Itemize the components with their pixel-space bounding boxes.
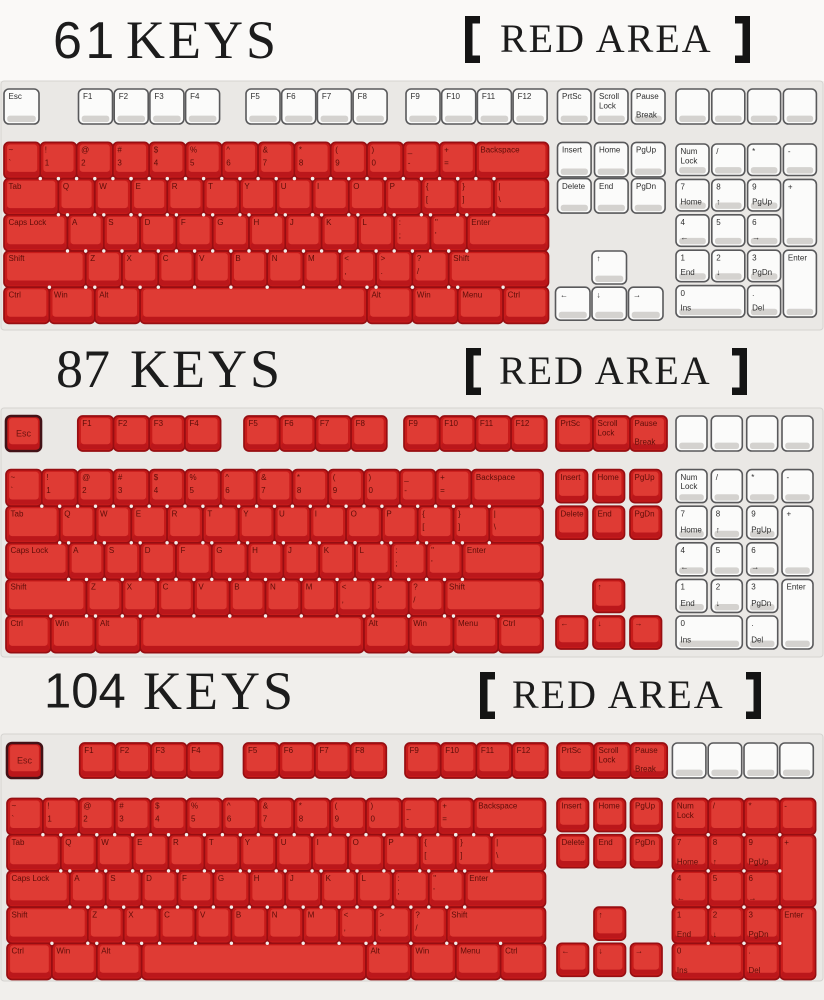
svg-text:*: * (749, 802, 752, 811)
svg-text:): ) (369, 473, 372, 482)
svg-text:=: = (444, 159, 449, 168)
svg-text:": " (435, 218, 438, 227)
svg-text:J: J (290, 874, 294, 883)
svg-text:F2: F2 (118, 419, 128, 428)
svg-text:↓: ↓ (716, 268, 720, 277)
svg-text:6: 6 (749, 874, 754, 883)
svg-text:Delete: Delete (561, 509, 585, 518)
svg-text:|: | (499, 182, 501, 191)
svg-text:Enter: Enter (471, 218, 490, 227)
svg-text:+: + (440, 473, 445, 482)
svg-text:S: S (110, 874, 115, 883)
svg-text:Enter: Enter (467, 546, 486, 555)
svg-text:→: → (633, 290, 641, 299)
svg-text:0: 0 (372, 159, 377, 168)
svg-text:3: 3 (752, 253, 757, 262)
svg-text:O: O (353, 182, 359, 191)
svg-text:F10: F10 (445, 746, 459, 755)
svg-text:+: + (788, 183, 793, 192)
svg-text:F6: F6 (286, 92, 296, 101)
svg-text:4: 4 (681, 218, 686, 227)
svg-text:T: T (207, 509, 212, 518)
svg-text:,: , (344, 923, 346, 932)
svg-text:F4: F4 (191, 746, 201, 755)
svg-text:C: C (163, 583, 169, 592)
svg-text:T: T (209, 838, 214, 847)
svg-text:9: 9 (749, 838, 754, 847)
svg-text:→: → (635, 619, 643, 628)
svg-text:O: O (353, 838, 359, 847)
svg-text:<: < (344, 910, 349, 919)
svg-text:~: ~ (11, 473, 16, 482)
svg-text:Scroll: Scroll (599, 746, 619, 755)
svg-text:T: T (208, 182, 213, 191)
svg-text:Backspace: Backspace (476, 473, 516, 482)
svg-text:←: ← (681, 562, 689, 571)
svg-text:5: 5 (716, 218, 721, 227)
svg-text:KEYS: KEYS (130, 339, 283, 399)
svg-text:Del: Del (751, 636, 763, 645)
svg-text:←: ← (562, 947, 570, 956)
svg-text:4: 4 (154, 159, 159, 168)
svg-text:Pause: Pause (635, 419, 658, 428)
svg-text:↓: ↓ (713, 930, 717, 939)
svg-text:F6: F6 (284, 419, 294, 428)
svg-text:7: 7 (263, 815, 268, 824)
svg-text:&: & (263, 802, 269, 811)
svg-text:9: 9 (752, 183, 757, 192)
svg-text:PgDn: PgDn (635, 838, 655, 847)
svg-text:*: * (297, 473, 300, 482)
svg-text:1: 1 (681, 583, 686, 592)
svg-text:(: ( (333, 473, 336, 482)
svg-text:Shift: Shift (11, 583, 28, 592)
svg-text:PgUp: PgUp (751, 526, 772, 535)
svg-text:%: % (190, 146, 197, 155)
svg-text:F: F (181, 218, 186, 227)
svg-text:F: F (182, 874, 187, 883)
svg-text:Alt: Alt (100, 619, 110, 628)
svg-text:!: ! (47, 802, 49, 811)
svg-text:Backspace: Backspace (480, 146, 520, 155)
svg-text:F3: F3 (154, 419, 164, 428)
svg-text:&: & (261, 473, 267, 482)
svg-text:Q: Q (64, 509, 70, 518)
svg-text:Home: Home (599, 802, 621, 811)
svg-text:S: S (109, 546, 114, 555)
svg-text:Tab: Tab (9, 182, 22, 191)
svg-text:#: # (119, 802, 124, 811)
svg-text:F9: F9 (410, 746, 420, 755)
svg-text:A: A (72, 218, 78, 227)
svg-text:End: End (681, 268, 695, 277)
svg-text:.: . (749, 947, 751, 956)
svg-text:3: 3 (751, 583, 756, 592)
svg-text:↑: ↑ (716, 197, 720, 206)
svg-text:Caps Lock: Caps Lock (12, 874, 51, 883)
svg-text:%: % (191, 802, 198, 811)
svg-text:;: ; (395, 559, 397, 568)
svg-text:F10: F10 (444, 419, 458, 428)
svg-text:F: F (181, 546, 186, 555)
svg-text:7: 7 (677, 838, 682, 847)
svg-text:Caps Lock: Caps Lock (9, 218, 48, 227)
svg-text:KEYS: KEYS (126, 10, 279, 70)
svg-text:Menu: Menu (458, 619, 478, 628)
svg-text:G: G (216, 546, 222, 555)
svg-text:+: + (444, 146, 449, 155)
svg-text:End: End (599, 182, 613, 191)
svg-text:U: U (281, 182, 287, 191)
svg-text:Enter: Enter (787, 583, 806, 592)
svg-text:End: End (681, 599, 695, 608)
svg-text:`: ` (12, 815, 15, 824)
svg-text:G: G (218, 874, 224, 883)
svg-text:L: L (362, 874, 367, 883)
svg-text:Break: Break (636, 111, 658, 120)
svg-text:E: E (136, 182, 141, 191)
svg-text:V: V (198, 583, 204, 592)
svg-text:Menu: Menu (462, 290, 482, 299)
svg-text:": " (433, 874, 436, 883)
svg-text:_: _ (405, 802, 411, 811)
svg-text:Delete: Delete (562, 182, 586, 191)
svg-text:|: | (494, 509, 496, 518)
svg-text:I: I (317, 838, 319, 847)
svg-text:-: - (788, 147, 791, 156)
svg-text:Lock: Lock (681, 482, 699, 491)
svg-text:9: 9 (335, 159, 340, 168)
svg-text:1: 1 (47, 815, 52, 824)
svg-text:Win: Win (413, 619, 427, 628)
svg-text:4: 4 (154, 486, 159, 495)
svg-text:Lock: Lock (681, 157, 699, 166)
svg-text:F8: F8 (358, 92, 368, 101)
svg-text:(: ( (335, 146, 338, 155)
svg-text:Z: Z (91, 583, 96, 592)
svg-text:→: → (749, 894, 757, 903)
svg-text:F5: F5 (251, 92, 261, 101)
svg-text:F12: F12 (518, 92, 532, 101)
svg-text:Scroll: Scroll (599, 92, 619, 101)
svg-text:9: 9 (333, 486, 338, 495)
svg-text:↑: ↑ (598, 583, 602, 592)
svg-text:RED AREA: RED AREA (499, 348, 712, 393)
svg-text:#: # (117, 146, 122, 155)
svg-text:Y: Y (245, 838, 251, 847)
svg-text:;: ; (397, 887, 399, 896)
svg-text:?: ? (417, 254, 422, 263)
svg-text:H: H (252, 546, 258, 555)
svg-text:0: 0 (677, 947, 682, 956)
svg-text:Q: Q (63, 182, 69, 191)
svg-text:6: 6 (752, 218, 757, 227)
svg-text:Home: Home (681, 526, 703, 535)
svg-text:↑: ↑ (599, 910, 603, 919)
svg-text:Num: Num (677, 802, 694, 811)
svg-text:$: $ (154, 146, 159, 155)
svg-text:F7: F7 (320, 419, 330, 428)
svg-text:<: < (344, 254, 349, 263)
svg-text:B: B (236, 910, 241, 919)
svg-text:F1: F1 (83, 92, 93, 101)
svg-text:L: L (362, 218, 367, 227)
svg-text:+: + (442, 802, 447, 811)
svg-text:Win: Win (415, 947, 429, 956)
svg-text:→: → (751, 562, 759, 571)
svg-text:6: 6 (751, 546, 756, 555)
svg-text:8: 8 (713, 838, 718, 847)
svg-text:O: O (351, 509, 357, 518)
svg-text:PrtSc: PrtSc (561, 419, 581, 428)
svg-text:`: ` (9, 159, 12, 168)
svg-text:Del: Del (752, 304, 764, 313)
svg-text:6: 6 (227, 815, 232, 824)
svg-text:-: - (784, 802, 787, 811)
svg-text:8: 8 (299, 815, 304, 824)
svg-text:Alt: Alt (99, 290, 109, 299)
svg-text:2: 2 (81, 159, 86, 168)
svg-text:M: M (306, 583, 313, 592)
svg-text:2: 2 (83, 815, 88, 824)
svg-text:1: 1 (45, 159, 50, 168)
svg-text:Enter: Enter (788, 253, 807, 262)
svg-text::: : (395, 546, 397, 555)
svg-text:X: X (128, 910, 134, 919)
svg-text:>: > (377, 583, 382, 592)
svg-text:J: J (288, 546, 292, 555)
svg-text:#: # (118, 473, 123, 482)
svg-text:}: } (462, 182, 465, 191)
svg-text:Break: Break (635, 765, 657, 774)
svg-text:F11: F11 (482, 92, 496, 101)
svg-text:*: * (752, 147, 755, 156)
svg-text:!: ! (46, 473, 48, 482)
svg-text:9: 9 (335, 815, 340, 824)
svg-text:F7: F7 (322, 92, 332, 101)
svg-text:P: P (390, 182, 395, 191)
svg-text:3: 3 (119, 815, 124, 824)
svg-text:↓: ↓ (599, 947, 603, 956)
svg-text:Y: Y (244, 182, 250, 191)
svg-text:F8: F8 (356, 419, 366, 428)
svg-text:F10: F10 (446, 92, 460, 101)
svg-text:P: P (388, 838, 393, 847)
svg-text:+: + (787, 509, 792, 518)
svg-text:`: ` (11, 486, 14, 495)
svg-text:K: K (324, 546, 330, 555)
svg-text:{: { (424, 838, 427, 847)
svg-text:Z: Z (90, 254, 95, 263)
svg-text:Esc: Esc (17, 756, 33, 766)
svg-text:Lock: Lock (599, 102, 617, 111)
svg-text:.: . (751, 619, 753, 628)
svg-text:0: 0 (681, 619, 686, 628)
svg-text:%: % (190, 473, 197, 482)
svg-text:Shift: Shift (12, 910, 29, 919)
svg-text:Ctrl: Ctrl (505, 947, 518, 956)
svg-text:?: ? (415, 910, 420, 919)
svg-text:PrtSc: PrtSc (562, 92, 582, 101)
svg-text:.: . (377, 596, 379, 605)
svg-text:F11: F11 (481, 746, 495, 755)
svg-text:Ctrl: Ctrl (9, 290, 22, 299)
svg-text:F9: F9 (411, 92, 421, 101)
svg-text:}: } (460, 838, 463, 847)
svg-text:D: D (145, 546, 151, 555)
svg-text:~: ~ (9, 146, 14, 155)
svg-text:N: N (272, 910, 278, 919)
svg-text:87: 87 (56, 339, 110, 399)
svg-text:-: - (404, 486, 407, 495)
svg-text:F2: F2 (120, 746, 130, 755)
svg-text:PgDn: PgDn (752, 268, 772, 277)
svg-text:End: End (599, 838, 613, 847)
svg-text:Ctrl: Ctrl (503, 619, 516, 628)
svg-text:Ctrl: Ctrl (12, 947, 25, 956)
svg-text:3: 3 (118, 486, 123, 495)
svg-text::: : (397, 874, 399, 883)
svg-text:?: ? (413, 583, 418, 592)
svg-text:Home: Home (677, 857, 699, 866)
svg-text:7: 7 (681, 509, 686, 518)
svg-text:]: ] (460, 851, 462, 860)
svg-text:104: 104 (44, 665, 126, 719)
svg-text:Num: Num (681, 473, 698, 482)
svg-text:": " (431, 546, 434, 555)
svg-text:9: 9 (751, 509, 756, 518)
svg-text:2: 2 (716, 583, 721, 592)
svg-text:Win: Win (55, 619, 69, 628)
svg-text:Ctrl: Ctrl (508, 290, 521, 299)
svg-text:Win: Win (417, 290, 431, 299)
svg-text:,: , (344, 267, 346, 276)
svg-text:.: . (381, 267, 383, 276)
svg-text:F1: F1 (82, 419, 92, 428)
svg-text:5: 5 (190, 486, 195, 495)
svg-text:Win: Win (54, 290, 68, 299)
svg-text:Insert: Insert (562, 802, 583, 811)
svg-text:~: ~ (12, 802, 17, 811)
svg-text:U: U (279, 509, 285, 518)
svg-text:F6: F6 (284, 746, 294, 755)
svg-text:G: G (217, 218, 223, 227)
svg-text:=: = (442, 815, 447, 824)
svg-text:P: P (386, 509, 391, 518)
svg-text:PgUp: PgUp (749, 857, 770, 866)
svg-text:Caps Lock: Caps Lock (11, 546, 50, 555)
svg-text:Home: Home (599, 146, 621, 155)
svg-text:F12: F12 (517, 746, 531, 755)
svg-text:PrtSc: PrtSc (562, 746, 582, 755)
svg-text:H: H (254, 218, 260, 227)
svg-text:F2: F2 (119, 92, 129, 101)
svg-text:7: 7 (263, 159, 268, 168)
svg-text:Break: Break (635, 438, 657, 447)
svg-text:H: H (254, 874, 260, 883)
svg-text:8: 8 (299, 159, 304, 168)
svg-text:B: B (234, 583, 239, 592)
svg-text:V: V (200, 910, 206, 919)
svg-text:↓: ↓ (598, 619, 602, 628)
svg-text:(: ( (335, 802, 338, 811)
svg-text:2: 2 (716, 253, 721, 262)
svg-text:^: ^ (226, 146, 230, 155)
svg-text:]: ] (462, 195, 464, 204)
svg-text:Ins: Ins (681, 636, 692, 645)
svg-text:]: ] (458, 522, 460, 531)
svg-text:End: End (677, 930, 691, 939)
svg-text:B: B (235, 254, 240, 263)
svg-text:_: _ (407, 146, 413, 155)
svg-text:N: N (270, 583, 276, 592)
svg-text:=: = (440, 486, 445, 495)
svg-text:W: W (100, 509, 108, 518)
svg-text:↓: ↓ (716, 599, 720, 608)
svg-text:4: 4 (677, 874, 682, 883)
svg-text:←: ← (681, 233, 689, 242)
svg-text:PgUp: PgUp (635, 802, 656, 811)
svg-text:Shift: Shift (451, 910, 468, 919)
svg-text:4: 4 (155, 815, 160, 824)
svg-text:&: & (263, 146, 269, 155)
svg-text:@: @ (83, 802, 91, 811)
svg-text:-: - (408, 159, 411, 168)
svg-text:F12: F12 (516, 419, 530, 428)
svg-text:↓: ↓ (597, 290, 601, 299)
svg-text:Num: Num (681, 147, 698, 156)
svg-text:I: I (317, 182, 319, 191)
svg-text:→: → (752, 233, 760, 242)
svg-text:←: ← (561, 619, 569, 628)
svg-text:{: { (422, 509, 425, 518)
svg-text:M: M (308, 254, 315, 263)
svg-text:Enter: Enter (469, 874, 488, 883)
svg-text:0: 0 (369, 486, 374, 495)
svg-text:{: { (426, 182, 429, 191)
svg-text:L: L (360, 546, 365, 555)
svg-text:PgDn: PgDn (751, 599, 771, 608)
svg-text:;: ; (399, 231, 401, 240)
svg-text:D: D (146, 874, 152, 883)
svg-text:Alt: Alt (371, 947, 381, 956)
svg-text:R: R (172, 509, 178, 518)
svg-text:E: E (136, 509, 141, 518)
svg-text:@: @ (82, 473, 90, 482)
svg-text:Alt: Alt (372, 290, 382, 299)
svg-text:↑: ↑ (713, 857, 717, 866)
svg-text:F8: F8 (355, 746, 365, 755)
svg-text:PgDn: PgDn (635, 509, 655, 518)
svg-text:>: > (380, 910, 385, 919)
svg-text:Tab: Tab (12, 838, 25, 847)
svg-text:Ins: Ins (677, 966, 688, 975)
svg-text:5: 5 (716, 546, 721, 555)
svg-text:E: E (137, 838, 142, 847)
svg-text:J: J (290, 218, 294, 227)
svg-text:-: - (406, 815, 409, 824)
svg-text:Esc: Esc (9, 92, 22, 101)
svg-text:N: N (272, 254, 278, 263)
svg-text:F7: F7 (319, 746, 329, 755)
svg-text:_: _ (403, 473, 409, 482)
svg-text:$: $ (154, 473, 159, 482)
svg-text:Ins: Ins (681, 304, 692, 313)
svg-text:): ) (372, 146, 375, 155)
svg-text:*: * (751, 473, 754, 482)
svg-text:F3: F3 (156, 746, 166, 755)
svg-text:<: < (342, 583, 347, 592)
